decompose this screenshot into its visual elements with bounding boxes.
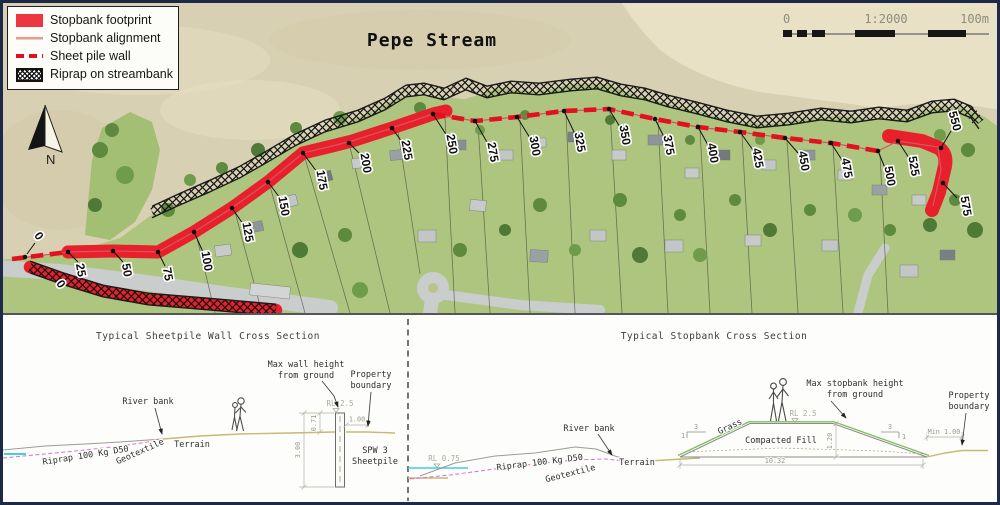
chainage-label: 25 [73,262,89,278]
chainage-label: 75 [160,266,176,282]
rl-crest-label: RL 2.5 [789,409,816,418]
legend-label: Stopbank alignment [50,32,161,45]
sheetpile-section: Typical Sheetpile Wall Cross Section [3,331,398,490]
map-legend: Stopbank footprint Stopbank alignment Sh… [7,6,179,90]
dim-exposed: 0.71 [310,415,318,431]
stopbank-footprint-swatch-icon [16,14,43,27]
stopbank-section: Typical Stopbank Cross Section RL 0.75 R… [408,331,989,485]
rl-water-label: RL 0.75 [428,454,460,463]
north-label: N [46,152,55,167]
rl-level-label: RL 2.5 [326,399,353,408]
section-title: Typical Sheetpile Wall Cross Section [96,331,320,342]
max-stopbank-height-label: Max stopbank height [806,379,903,389]
property-boundary-label2: boundary [949,402,990,412]
property-boundary-label2: boundary [351,381,392,391]
rl-water-symbol-icon [434,464,440,468]
scale-max: 100m [960,12,989,26]
dim-width: 10.32 [765,457,785,465]
terrain-line [163,432,395,439]
wall-type-label2: Sheetpile [352,457,398,467]
scale-ratio: 1:2000 [783,12,989,26]
scale-labels: 0 1:2000 100m [783,12,989,28]
slope-run-left: 3 [694,423,698,431]
section-title: Typical Stopbank Cross Section [621,331,808,342]
wall-type-label: SPW 3 [362,446,388,456]
compacted-fill-label: Compacted Fill [745,436,817,446]
sheet-pile-swatch-icon [16,54,43,58]
terrain-label: Terrain [174,440,210,450]
river-bank-label: River bank [122,397,173,407]
property-boundary-label: Property [949,391,990,401]
drawing-sheet: 0 25 50 75 100 125 150 175 200 225 250 2… [0,0,1000,505]
river-bank-label: River bank [563,424,614,434]
legend-label: Riprap on streambank [50,68,173,81]
property-leader [962,413,966,445]
slope-rise-right: 1 [902,433,906,441]
max-wall-height-label: Max wall height [268,360,345,370]
person-figure [232,398,246,431]
max-wall-height-label2: from ground [278,371,334,381]
dim-offset: 1.00 [349,416,365,424]
riprap-label: Riprap 100 Kg D50 [42,444,129,467]
terrain-label: Terrain [619,458,655,468]
dim-embed: 3.00 [294,442,302,458]
max-stopbank-height-label2: from ground [827,390,883,400]
map-panel: 0 25 50 75 100 125 150 175 200 225 250 2… [0,0,1000,313]
map-title: Pepe Stream [367,30,497,51]
dim-min-offset: Min 1.00 [928,428,961,436]
cross-sections-panel: Typical Sheetpile Wall Cross Section [0,313,1000,505]
scale-graphic [783,30,989,38]
slope-run-right: 3 [888,423,892,431]
legend-label: Stopbank footprint [50,14,151,27]
scale-bar: 0 1:2000 100m [783,12,989,38]
legend-item-sheet-pile-wall: Sheet pile wall [16,50,170,63]
river-bank-leader [155,408,162,434]
legend-item-riprap: Riprap on streambank [16,68,170,82]
stopbank-alignment-swatch-icon [16,32,43,45]
slope-rise-left: 1 [681,432,685,440]
property-leader [368,392,371,426]
legend-item-stopbank-alignment: Stopbank alignment [16,32,170,45]
rl-symbol-icon [333,409,339,413]
legend-label: Sheet pile wall [50,50,131,63]
property-boundary-label: Property [351,370,392,380]
cross-sections: Typical Sheetpile Wall Cross Section [0,315,1000,505]
max-height-leader [831,401,846,418]
legend-item-stopbank-footprint: Stopbank footprint [16,14,170,27]
dim-height: 1.20 [826,433,834,449]
riprap-swatch-icon [16,68,43,82]
people-figures [769,379,789,421]
chainage-label: 50 [119,262,135,278]
terrain-right-line [927,451,988,458]
